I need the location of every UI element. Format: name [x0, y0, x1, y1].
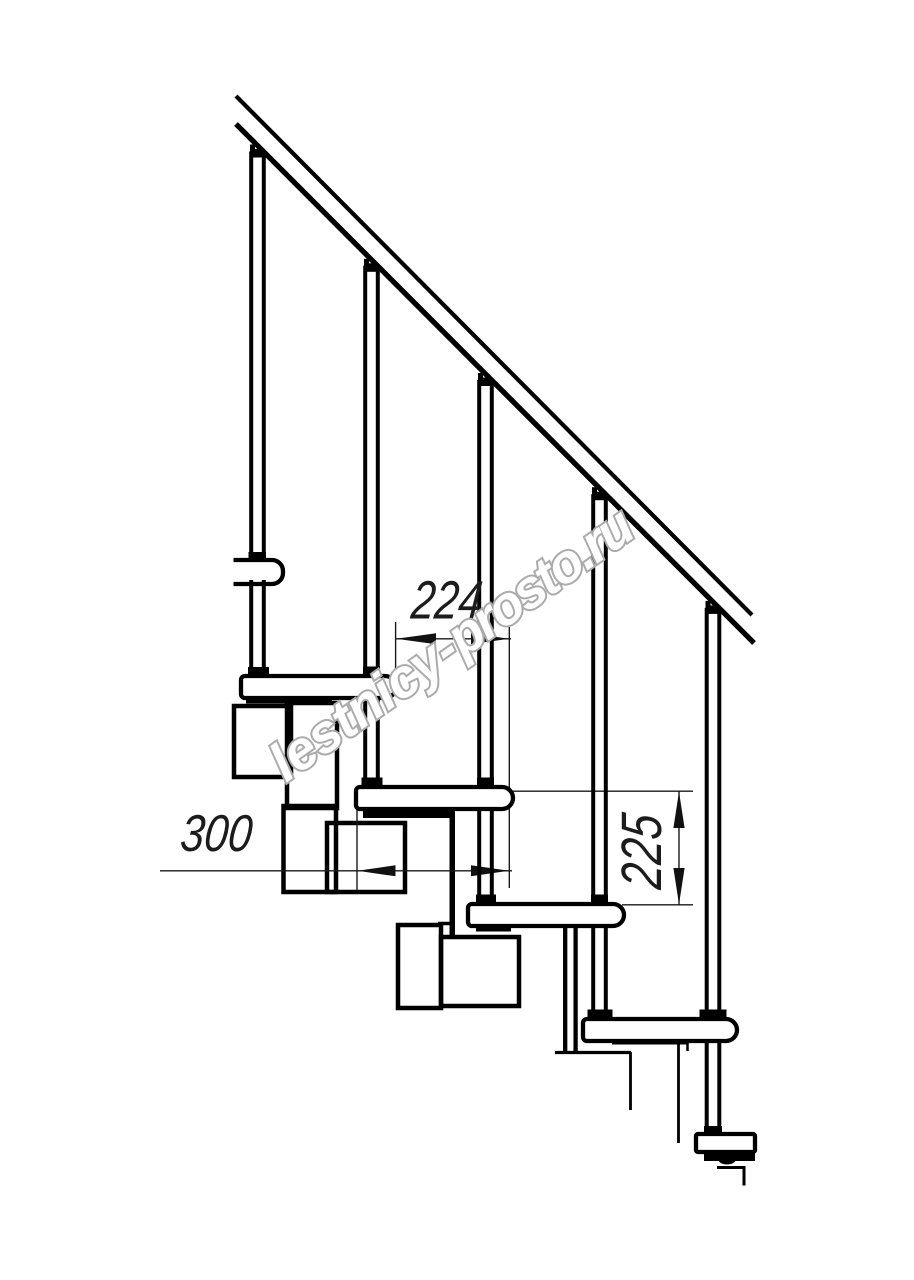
svg-text:225: 225	[610, 810, 673, 892]
svg-text:300: 300	[178, 805, 256, 863]
